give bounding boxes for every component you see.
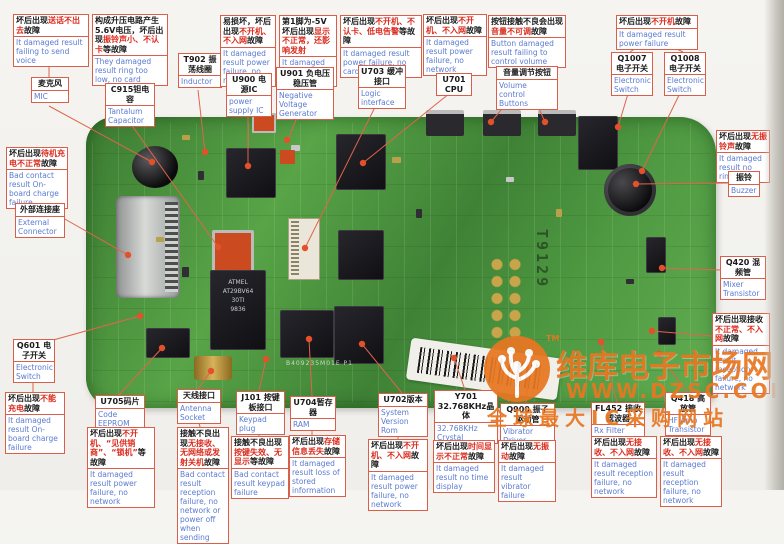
side-switch	[538, 110, 576, 136]
callout-q1008: Q1008 电子开关Electronic Switch	[664, 52, 706, 96]
callout-q420: Q420 混频管Mixer Transistor	[720, 256, 766, 300]
callout-en-text: External Connector	[16, 216, 64, 237]
text-run: 按钮接触不良会出现	[491, 17, 563, 26]
text-run: 故障	[468, 452, 484, 461]
text-run: 坏后出现	[719, 132, 751, 141]
callout-j101: J101 按键板接口Keypad plug	[236, 391, 285, 435]
callout-cn-text: 按钮接触不良会出现音量不可调故障	[489, 16, 565, 37]
callout-q418: Q418 高放管HF Amp Transistor	[665, 392, 711, 436]
text-run: U702版本	[383, 395, 422, 404]
callout-mic: 麦克风MIC	[31, 77, 69, 103]
callout-en-text: Keypad plug	[237, 413, 284, 434]
text-run: 坏后出现	[371, 441, 403, 450]
cpu-chip	[336, 134, 386, 190]
callout-en-text: Code EEPROM	[96, 408, 144, 429]
callout-u701: U701 CPU	[436, 73, 472, 96]
callout-ext-fault: 坏后出现待机充电不正常故障Bad contact result On-board…	[6, 147, 68, 209]
text-run: Q1007 电子开关	[616, 54, 648, 73]
callout-en-text: Tantalum Capacitor	[106, 105, 154, 126]
callout-en-text: Volume control Buttons	[497, 79, 557, 109]
callout-en-text: It damaged result loss of stored informa…	[290, 457, 345, 496]
callout-q1007-fault: 坏后出现不开机故障It damaged result power failure	[616, 15, 698, 50]
callout-cn-text: 接触不良出现无接收、无网络或发射关机故障	[178, 428, 228, 468]
callout-u704: U704暂存器RAM	[290, 396, 336, 431]
chip-marking-line: ATMEL	[211, 278, 265, 287]
text-run: U703 缓冲接口	[361, 67, 403, 86]
callout-cn-text: 坏后出现无接收、不入网故障	[592, 437, 656, 458]
callout-q418-fault: 坏后出现无接收、不入网故障It damaged result reception…	[660, 436, 722, 507]
callout-cn-text: 构成升压电路产生5.6V电压，坏后出现振铃声小、不认卡等故障	[93, 15, 167, 55]
text-run: Q418 高放管	[671, 394, 705, 413]
text-run: 坏后出现	[343, 17, 375, 26]
text-run: 坏后出现接收	[715, 315, 763, 324]
small-ic	[646, 237, 666, 273]
callout-u705-fault: 坏后出现不开机、“见供销商”、“锁机”等故障It damaged result …	[87, 427, 155, 508]
text-run: 故障	[509, 452, 525, 461]
callout-buzzer: 振铃Buzzer	[728, 171, 760, 197]
callout-en-text: Buzzer	[729, 184, 759, 196]
callout-en-text: Electronic Switch	[612, 74, 652, 95]
callout-en-text: Electronic Switch	[665, 74, 705, 95]
callout-cn-text: 接触不良出现按键失效、无显示等故障	[232, 437, 288, 468]
callout-en-text: It damaged result failing to send voice	[14, 36, 88, 66]
callout-cn-text: Q1008 电子开关	[665, 53, 705, 74]
callout-cn-text: FL452 接收滤波器	[592, 403, 644, 424]
callout-en-text: System Version Rom	[379, 406, 427, 436]
callout-cn-text: 第1脚为-5V坏后出现显示不正常，还影响发射	[280, 16, 336, 56]
text-run: 坏后出现	[619, 17, 651, 26]
callout-q1007: Q1007 电子开关Electronic Switch	[611, 52, 653, 96]
text-run: Q900 振子驱动管	[506, 405, 548, 424]
passive-component	[506, 177, 514, 182]
text-run: 故障	[24, 26, 40, 35]
side-switch	[426, 110, 464, 136]
callout-fl452: FL452 接收滤波器Rx Filter	[591, 402, 645, 437]
board-silkscreen-text: B409235M01E P1	[286, 360, 353, 367]
microphone-component	[132, 146, 178, 188]
logic-chip	[338, 230, 384, 280]
callout-cn-text: U900 电源IC	[227, 74, 271, 95]
antenna-gold-contact	[194, 356, 232, 380]
callout-en-text: It damaged result power failure, no netw…	[369, 471, 427, 510]
text-run: 坏后出现	[292, 437, 324, 446]
callout-j101-fault: 接触不良出现按键失效、无显示等故障Bad contact result keyp…	[231, 436, 289, 499]
chip-marking-line: AT29BV64	[211, 287, 265, 296]
text-run: 故障	[247, 36, 263, 45]
callout-y701-fault: 坏后出现时间显示不正常故障It damaged result no time d…	[433, 440, 495, 493]
callout-en-text: Logic interface	[359, 87, 405, 108]
text-run: 坏后出现	[16, 16, 48, 25]
text-run: 故障	[703, 448, 719, 457]
text-run: 坏后出现	[663, 438, 695, 447]
callout-u702-fault: 坏后出现不开机、不入网故障It damaged result power fai…	[368, 439, 428, 511]
pcb-board: ATMEL AT29BV64 30TI 9836 T9129 B409235M0…	[86, 117, 716, 408]
callout-en-text: It damaged result power failure, no netw…	[424, 36, 486, 75]
power-ic-chip	[226, 148, 276, 198]
callout-cn-text: C915钽电容	[106, 84, 154, 105]
page-edge-shadow	[764, 0, 784, 490]
callout-en-text: It damaged result reception failure, no …	[592, 458, 656, 497]
callout-c915-fault: 构成升压电路产生5.6V电压，坏后出现振铃声小、不认卡等故障They damag…	[92, 14, 168, 86]
callout-cn-text: 坏后出现不开机故障	[617, 16, 697, 28]
chip-marking: ATMEL AT29BV64 30TI 9836	[211, 271, 265, 314]
callout-cn-text: 坏后出现无接收、不入网故障	[661, 437, 721, 458]
text-run: 故障	[324, 447, 340, 456]
chip-marking-line: 9836	[211, 305, 265, 314]
callout-cn-text: 坏后出现接收不正常、不入网故障	[713, 314, 769, 345]
text-run: 坏后出现	[9, 149, 41, 158]
text-run: 故障	[634, 448, 650, 457]
callout-cn-text: 振铃	[729, 172, 759, 184]
callout-en-text: Negative Voltage Generator	[277, 89, 333, 119]
barcode-bars	[417, 347, 545, 390]
text-run: 故障	[204, 458, 220, 467]
callout-cn-text: 坏后出现不开机、不入网故障	[369, 440, 427, 471]
passive-component	[556, 209, 562, 217]
text-run: 音量调节按钮	[503, 68, 551, 77]
connector-pins	[165, 202, 178, 292]
callout-en-text: MIC	[32, 90, 68, 102]
text-run: 音量不可调	[491, 27, 531, 36]
text-run: U705码片	[100, 397, 139, 406]
gold-test-pads	[488, 256, 524, 342]
callout-en-text: It damaged result power failure, no netw…	[88, 468, 154, 507]
callout-en-text: They damaged result ring too low, no car…	[93, 55, 167, 85]
callout-cn-text: 坏后出现不开机、“见供销商”、“锁机”等故障	[88, 428, 154, 468]
small-ic	[658, 317, 676, 345]
callout-en-text: power supply IC	[227, 95, 271, 116]
callout-cn-text: Q900 振子驱动管	[501, 404, 554, 425]
callout-en-text: Bad contact result reception failure, no…	[178, 468, 228, 543]
callout-fl452-fault: 坏后出现无接收、不入网故障It damaged result reception…	[591, 436, 657, 498]
text-run: U901 负电压稳压管	[280, 69, 330, 88]
scanned-pcb-fault-diagram: { "colors":{"accent_border":"#d95f4a","f…	[0, 0, 784, 490]
text-run: 坏后出现	[90, 429, 122, 438]
buzzer-component	[604, 164, 656, 216]
text-run: 等故障	[250, 457, 274, 466]
callout-en-text: Rx Filter	[592, 424, 644, 436]
callout-cn-text: 坏后出现时间显示不正常故障	[434, 441, 494, 462]
callout-en-text: It damaged result vibrator failure	[499, 462, 555, 501]
callout-en-text: Button damaged result failing to control…	[489, 37, 565, 67]
callout-antenna-fault: 接触不良出现无接收、无网络或发射关机故障Bad contact result r…	[177, 427, 229, 544]
text-run: U900 电源IC	[232, 75, 266, 94]
text-run: 坏后出现	[8, 394, 40, 403]
passive-component	[416, 209, 422, 218]
text-run: 故障	[41, 159, 57, 168]
text-run: 坏后出现	[594, 438, 626, 447]
text-run: 故障	[466, 26, 482, 35]
callout-cn-text: 坏后出现无振动故障	[499, 441, 555, 462]
callout-antenna: 天线接口Antenna Socket	[177, 389, 221, 424]
passive-component	[156, 237, 164, 242]
callout-cn-text: 坏后出现存储信息丢失故障	[290, 436, 345, 457]
white-connector-component	[288, 218, 320, 280]
callout-en-text: It damaged result no time display	[434, 462, 494, 492]
text-run: 故障	[723, 334, 739, 343]
passive-component	[198, 171, 204, 180]
text-run: 天线接口	[183, 391, 215, 400]
text-run: 坏后出现	[501, 442, 533, 451]
text-run: 坏后出现	[426, 16, 458, 25]
text-run: 坏后出现	[436, 442, 468, 451]
text-run: 振铃	[736, 173, 752, 182]
callout-cn-text: J101 按键板接口	[237, 392, 284, 413]
callout-en-text: Antenna Socket	[178, 402, 220, 423]
callout-en-text: Electronic Switch	[14, 361, 54, 382]
eeprom-chip	[146, 328, 190, 358]
callout-cn-text: U702版本	[379, 394, 427, 406]
callout-cn-text: 坏后出现不开机、不入网故障	[424, 15, 486, 36]
callout-cn-text: 坏后出现送话不出去故障	[14, 15, 88, 36]
callout-rx-fault: 坏后出现接收不正常、不入网故障It damaged result recepti…	[712, 313, 770, 394]
flash-memory-chip: ATMEL AT29BV64 30TI 9836	[210, 270, 266, 350]
text-run: Q1008 电子开关	[669, 54, 701, 73]
callout-cn-text: 音量调节按钮	[497, 67, 557, 79]
callout-ext: 外部连接座External Connector	[15, 203, 65, 238]
callout-u900: U900 电源ICpower supply IC	[226, 73, 272, 117]
text-run: T902 振荡线圈	[184, 55, 217, 74]
passive-component	[182, 267, 189, 277]
callout-cn-text: 天线接口	[178, 390, 220, 402]
passive-component	[626, 279, 634, 284]
callout-en-text: It damaged result power failure	[617, 28, 697, 49]
text-run: 接触不良出现	[234, 438, 282, 447]
callout-cn-text: Q1007 电子开关	[612, 53, 652, 74]
text-run: J101 按键板接口	[241, 393, 279, 412]
callout-u701-fault: 坏后出现不开机、不入网故障It damaged result power fai…	[423, 14, 487, 76]
callout-cn-text: 外部连接座	[16, 204, 64, 216]
callout-u901: U901 负电压稳压管Negative Voltage Generator	[276, 67, 334, 120]
external-connector-component	[116, 196, 180, 298]
callout-vol: 音量调节按钮Volume control Buttons	[496, 66, 558, 110]
ram-chip	[280, 310, 334, 358]
callout-cn-text: Q418 高放管	[666, 393, 710, 414]
text-run: Q601 电子开关	[17, 341, 51, 360]
callout-cn-text: 坏后出现待机充电不正常故障	[7, 148, 67, 169]
callout-en-text: HF Amp Transistor	[666, 414, 710, 435]
text-run: Y701 32.768KHz晶体	[438, 392, 494, 420]
callout-u702: U702版本System Version Rom	[378, 393, 428, 437]
text-run: 故障	[24, 404, 40, 413]
callout-vol-fault: 按钮接触不良会出现音量不可调故障Button damaged result fa…	[488, 15, 566, 68]
callout-q601-fault: 坏后出现不能充电故障It damaged result On-board cha…	[5, 392, 65, 454]
callout-cn-text: U701 CPU	[437, 74, 471, 95]
callout-q900-fault: 坏后出现无振动故障It damaged result vibrator fail…	[498, 440, 556, 502]
connector-pins	[291, 221, 299, 277]
callout-cn-text: Q420 混频管	[721, 257, 765, 278]
passive-component	[392, 157, 401, 163]
board-vertical-marking: T9129	[533, 229, 551, 289]
callout-y701: Y701 32.768KHz晶体32.768KHz Crystal	[434, 390, 498, 444]
chip-marking-line: 30TI	[211, 296, 265, 305]
text-run: FL452 接收滤波器	[595, 404, 641, 423]
passive-component	[182, 135, 190, 140]
callout-en-text: It damaged result reception failure, no …	[713, 345, 769, 393]
callout-cn-text: 坏后出现无振铃声故障	[717, 131, 769, 152]
callout-c915: C915钽电容Tantalum Capacitor	[105, 83, 155, 127]
callout-en-text: It damaged result reception failure, no …	[661, 458, 721, 506]
callout-cn-text: 麦克风	[32, 78, 68, 90]
text-run: 故障	[735, 142, 751, 151]
text-run: 故障	[531, 27, 547, 36]
callout-cn-text: U704暂存器	[291, 397, 335, 418]
text-run: 不开机	[651, 17, 675, 26]
version-rom-chip	[334, 306, 384, 364]
edge-connector-chip	[578, 116, 618, 170]
callout-en-text: It damaged result On-board charge failur…	[6, 414, 64, 453]
text-run: Q420 混频管	[726, 258, 760, 277]
text-run: 麦克风	[38, 79, 62, 88]
callout-en-text: RAM	[291, 418, 335, 430]
callout-cn-text: U703 缓冲接口	[359, 66, 405, 87]
passive-component	[280, 150, 295, 164]
callout-u703: U703 缓冲接口Logic interface	[358, 65, 406, 109]
callout-en-text: Inductor	[179, 75, 221, 87]
callout-cn-text: U705码片	[96, 396, 144, 408]
callout-mic-fault: 坏后出现送话不出去故障It damaged result failing to …	[13, 14, 89, 67]
callout-cn-text: 易损坏，坏后出现不开机、不入网故障	[221, 16, 275, 47]
text-run: U704暂存器	[293, 398, 332, 417]
text-run: C915钽电容	[111, 85, 150, 104]
callout-cn-text: T902 振荡线圈	[179, 54, 221, 75]
callout-en-text: Bad contact result keypad failure	[232, 468, 288, 498]
callout-cn-text: U901 负电压稳压管	[277, 68, 333, 89]
callout-u705: U705码片Code EEPROM	[95, 395, 145, 430]
callout-t902: T902 振荡线圈Inductor	[178, 53, 222, 88]
callout-q601: Q601 电子开关Electronic Switch	[13, 339, 55, 383]
text-run: 等故障	[103, 45, 127, 54]
callout-cn-text: 坏后出现不开机、不认卡、低电告警等故障	[341, 16, 421, 47]
callout-cn-text: Q601 电子开关	[14, 340, 54, 361]
callout-en-text: Mixer Transistor	[721, 278, 765, 299]
side-switch	[483, 110, 521, 136]
text-run: U701 CPU	[442, 75, 465, 94]
text-run: 故障	[675, 17, 691, 26]
callout-cn-text: 坏后出现不能充电故障	[6, 393, 64, 414]
callout-cn-text: Y701 32.768KHz晶体	[435, 391, 497, 422]
callout-u704-fault: 坏后出现存储信息丢失故障It damaged result loss of st…	[289, 435, 346, 497]
text-run: 外部连接座	[20, 205, 60, 214]
